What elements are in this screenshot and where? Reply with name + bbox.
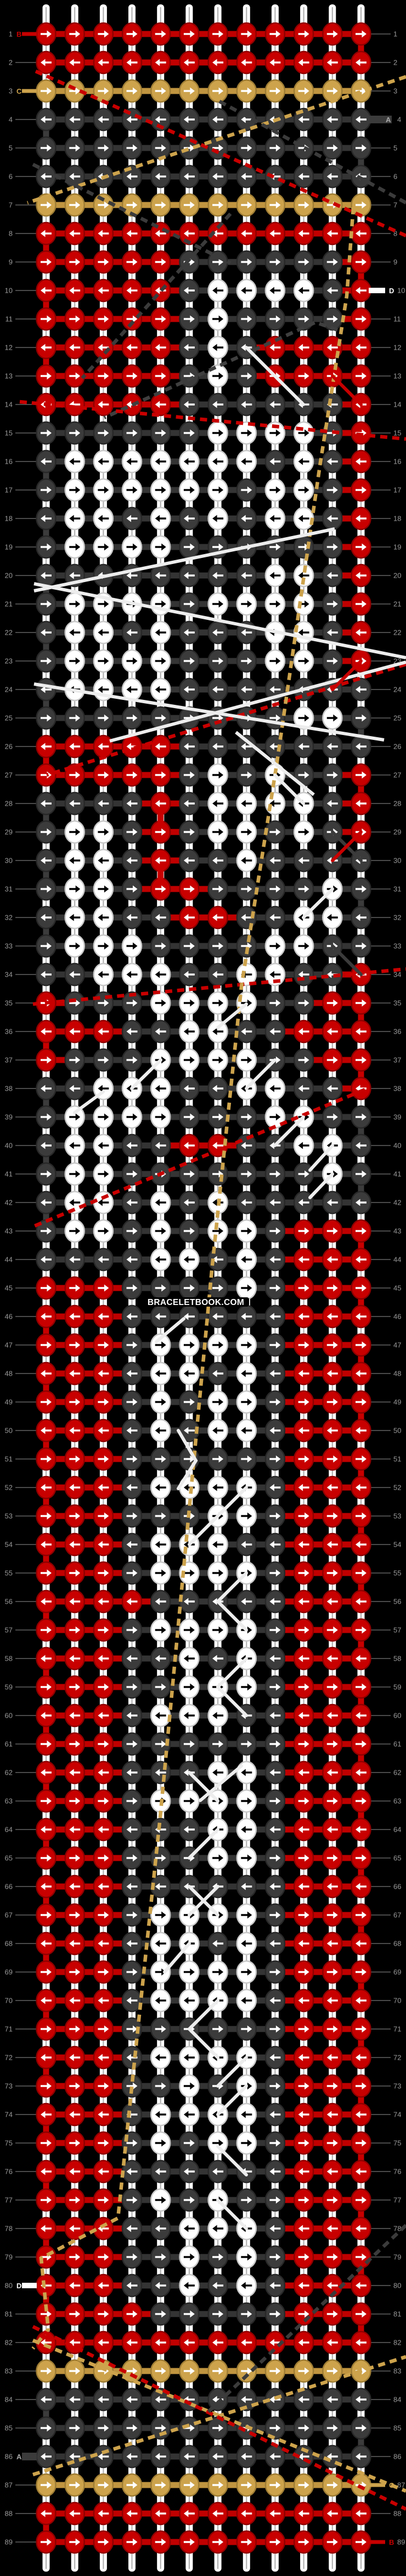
- svg-text:21: 21: [5, 600, 13, 608]
- svg-text:41: 41: [5, 1170, 13, 1178]
- svg-text:56: 56: [393, 1598, 401, 1606]
- svg-text:30: 30: [5, 857, 13, 865]
- svg-text:82: 82: [393, 2339, 401, 2347]
- svg-text:17: 17: [5, 486, 13, 494]
- svg-text:34: 34: [5, 971, 13, 979]
- svg-text:80: 80: [393, 2282, 401, 2290]
- svg-text:83: 83: [5, 2367, 13, 2375]
- svg-text:41: 41: [393, 1170, 401, 1178]
- svg-text:A: A: [16, 2453, 22, 2461]
- svg-text:6: 6: [393, 173, 397, 181]
- svg-text:39: 39: [393, 1113, 401, 1121]
- svg-text:21: 21: [393, 600, 401, 608]
- svg-text:20: 20: [393, 572, 401, 580]
- svg-text:51: 51: [5, 1455, 13, 1463]
- svg-text:28: 28: [393, 800, 401, 808]
- svg-text:22: 22: [5, 629, 13, 637]
- svg-text:B: B: [16, 30, 21, 38]
- svg-text:72: 72: [5, 2054, 13, 2062]
- svg-text:69: 69: [5, 1968, 13, 1976]
- svg-text:74: 74: [393, 2111, 401, 2119]
- svg-text:32: 32: [5, 914, 13, 922]
- svg-text:68: 68: [5, 1940, 13, 1948]
- svg-text:29: 29: [393, 828, 401, 836]
- svg-text:44: 44: [393, 1256, 401, 1264]
- svg-text:52: 52: [5, 1484, 13, 1492]
- svg-text:32: 32: [393, 914, 401, 922]
- svg-text:39: 39: [5, 1113, 13, 1121]
- svg-text:66: 66: [5, 1883, 13, 1891]
- svg-text:61: 61: [5, 1740, 13, 1748]
- svg-text:47: 47: [393, 1341, 401, 1349]
- svg-text:78: 78: [5, 2225, 13, 2233]
- svg-text:23: 23: [5, 657, 13, 665]
- svg-text:5: 5: [9, 144, 13, 152]
- svg-text:18: 18: [393, 515, 401, 523]
- svg-text:1: 1: [9, 30, 13, 38]
- svg-text:9: 9: [9, 258, 13, 266]
- svg-text:63: 63: [5, 1797, 13, 1805]
- svg-text:57: 57: [393, 1626, 401, 1634]
- svg-text:42: 42: [393, 1199, 401, 1207]
- svg-text:16: 16: [393, 458, 401, 466]
- svg-text:50: 50: [5, 1427, 13, 1435]
- svg-text:55: 55: [5, 1569, 13, 1577]
- svg-text:84: 84: [5, 2396, 13, 2404]
- svg-text:54: 54: [393, 1541, 401, 1549]
- svg-text:D: D: [389, 287, 394, 295]
- svg-text:C: C: [16, 87, 22, 95]
- svg-text:70: 70: [393, 1997, 401, 2005]
- svg-text:58: 58: [5, 1655, 13, 1663]
- svg-text:76: 76: [5, 2168, 13, 2176]
- svg-text:52: 52: [393, 1484, 401, 1492]
- svg-text:12: 12: [5, 344, 13, 352]
- svg-text:71: 71: [393, 2025, 401, 2033]
- svg-text:86: 86: [393, 2453, 401, 2461]
- svg-text:35: 35: [393, 999, 401, 1007]
- svg-text:37: 37: [5, 1056, 13, 1064]
- svg-text:9: 9: [393, 258, 397, 266]
- svg-text:46: 46: [5, 1313, 13, 1321]
- svg-text:49: 49: [5, 1398, 13, 1406]
- svg-text:38: 38: [5, 1085, 13, 1093]
- svg-text:27: 27: [5, 771, 13, 779]
- svg-text:56: 56: [5, 1598, 13, 1606]
- svg-text:5: 5: [393, 144, 397, 152]
- svg-text:10: 10: [397, 287, 405, 295]
- svg-text:61: 61: [393, 1740, 401, 1748]
- svg-text:70: 70: [5, 1997, 13, 2005]
- svg-text:87: 87: [5, 2481, 13, 2489]
- svg-text:89: 89: [397, 2538, 405, 2546]
- svg-text:25: 25: [393, 714, 401, 722]
- svg-text:13: 13: [5, 372, 13, 380]
- svg-text:79: 79: [393, 2253, 401, 2261]
- svg-text:33: 33: [5, 942, 13, 950]
- svg-text:89: 89: [5, 2538, 13, 2546]
- svg-text:60: 60: [393, 1712, 401, 1720]
- svg-text:62: 62: [393, 1769, 401, 1777]
- svg-text:3: 3: [9, 87, 13, 95]
- svg-text:17: 17: [393, 486, 401, 494]
- svg-text:31: 31: [5, 885, 13, 893]
- svg-text:3: 3: [393, 87, 397, 95]
- svg-text:51: 51: [393, 1455, 401, 1463]
- svg-text:11: 11: [5, 315, 13, 323]
- svg-text:57: 57: [5, 1626, 13, 1634]
- svg-text:8: 8: [9, 230, 13, 238]
- svg-text:19: 19: [5, 543, 13, 551]
- svg-text:73: 73: [393, 2082, 401, 2090]
- svg-text:47: 47: [5, 1341, 13, 1349]
- svg-text:76: 76: [393, 2168, 401, 2176]
- svg-text:40: 40: [5, 1142, 13, 1150]
- svg-text:72: 72: [393, 2054, 401, 2062]
- svg-text:A: A: [386, 116, 391, 124]
- svg-text:12: 12: [393, 344, 401, 352]
- svg-text:58: 58: [393, 1655, 401, 1663]
- svg-text:1: 1: [393, 30, 397, 38]
- svg-text:24: 24: [393, 686, 401, 694]
- svg-text:40: 40: [393, 1142, 401, 1150]
- svg-text:85: 85: [5, 2424, 13, 2432]
- svg-text:83: 83: [393, 2367, 401, 2375]
- svg-text:25: 25: [5, 714, 13, 722]
- svg-text:19: 19: [393, 543, 401, 551]
- svg-text:65: 65: [5, 1854, 13, 1862]
- svg-text:D: D: [16, 2282, 21, 2290]
- svg-text:37: 37: [393, 1056, 401, 1064]
- svg-text:77: 77: [393, 2196, 401, 2204]
- svg-text:36: 36: [5, 1028, 13, 1036]
- svg-text:14: 14: [5, 401, 13, 409]
- svg-text:53: 53: [5, 1512, 13, 1520]
- svg-text:67: 67: [393, 1911, 401, 1919]
- svg-text:88: 88: [5, 2510, 13, 2518]
- svg-text:7: 7: [393, 201, 397, 209]
- svg-text:81: 81: [393, 2310, 401, 2318]
- svg-text:60: 60: [5, 1712, 13, 1720]
- svg-text:81: 81: [5, 2310, 13, 2318]
- svg-text:10: 10: [5, 287, 13, 295]
- svg-text:80: 80: [5, 2282, 13, 2290]
- svg-text:50: 50: [393, 1427, 401, 1435]
- svg-text:62: 62: [5, 1769, 13, 1777]
- svg-text:26: 26: [5, 743, 13, 751]
- svg-text:28: 28: [5, 800, 13, 808]
- svg-text:18: 18: [5, 515, 13, 523]
- svg-text:6: 6: [9, 173, 13, 181]
- svg-text:79: 79: [5, 2253, 13, 2261]
- svg-text:43: 43: [5, 1227, 13, 1235]
- svg-text:88: 88: [393, 2510, 401, 2518]
- svg-text:59: 59: [5, 1683, 13, 1691]
- svg-text:86: 86: [5, 2453, 13, 2461]
- svg-text:59: 59: [393, 1683, 401, 1691]
- svg-text:67: 67: [5, 1911, 13, 1919]
- svg-text:77: 77: [5, 2196, 13, 2204]
- svg-text:29: 29: [5, 828, 13, 836]
- svg-text:42: 42: [5, 1199, 13, 1207]
- svg-text:31: 31: [393, 885, 401, 893]
- svg-text:7: 7: [9, 201, 13, 209]
- svg-text:36: 36: [393, 1028, 401, 1036]
- svg-text:48: 48: [393, 1370, 401, 1378]
- svg-text:74: 74: [5, 2111, 13, 2119]
- svg-text:54: 54: [5, 1541, 13, 1549]
- svg-text:45: 45: [5, 1284, 13, 1292]
- svg-text:4: 4: [9, 116, 13, 124]
- svg-text:33: 33: [393, 942, 401, 950]
- svg-text:82: 82: [5, 2339, 13, 2347]
- svg-text:73: 73: [5, 2082, 13, 2090]
- svg-text:64: 64: [5, 1826, 13, 1834]
- svg-text:68: 68: [393, 1940, 401, 1948]
- svg-text:49: 49: [393, 1398, 401, 1406]
- svg-text:15: 15: [393, 429, 401, 437]
- svg-text:69: 69: [393, 1968, 401, 1976]
- svg-text:71: 71: [5, 2025, 13, 2033]
- svg-text:30: 30: [393, 857, 401, 865]
- svg-text:65: 65: [393, 1854, 401, 1862]
- svg-text:84: 84: [393, 2396, 401, 2404]
- svg-text:16: 16: [5, 458, 13, 466]
- svg-text:BRACELETBOOK.COM: BRACELETBOOK.COM: [148, 1298, 244, 1307]
- svg-text:4: 4: [397, 116, 401, 124]
- svg-text:14: 14: [393, 401, 401, 409]
- svg-text:64: 64: [393, 1826, 401, 1834]
- svg-text:38: 38: [393, 1085, 401, 1093]
- svg-text:22: 22: [393, 629, 401, 637]
- svg-text:66: 66: [393, 1883, 401, 1891]
- svg-text:75: 75: [393, 2139, 401, 2147]
- svg-text:13: 13: [393, 372, 401, 380]
- svg-text:46: 46: [393, 1313, 401, 1321]
- svg-text:48: 48: [5, 1370, 13, 1378]
- svg-text:2: 2: [393, 59, 397, 67]
- svg-text:43: 43: [393, 1227, 401, 1235]
- svg-text:20: 20: [5, 572, 13, 580]
- svg-text:44: 44: [5, 1256, 13, 1264]
- svg-text:85: 85: [393, 2424, 401, 2432]
- svg-text:11: 11: [393, 315, 401, 323]
- svg-text:75: 75: [5, 2139, 13, 2147]
- svg-text:63: 63: [393, 1797, 401, 1805]
- svg-text:B: B: [389, 2538, 394, 2546]
- svg-text:55: 55: [393, 1569, 401, 1577]
- svg-text:53: 53: [393, 1512, 401, 1520]
- svg-text:87: 87: [397, 2481, 405, 2489]
- svg-text:45: 45: [393, 1284, 401, 1292]
- svg-text:15: 15: [5, 429, 13, 437]
- svg-text:24: 24: [5, 686, 13, 694]
- svg-text:26: 26: [393, 743, 401, 751]
- svg-text:27: 27: [393, 771, 401, 779]
- svg-text:35: 35: [5, 999, 13, 1007]
- svg-text:2: 2: [9, 59, 13, 67]
